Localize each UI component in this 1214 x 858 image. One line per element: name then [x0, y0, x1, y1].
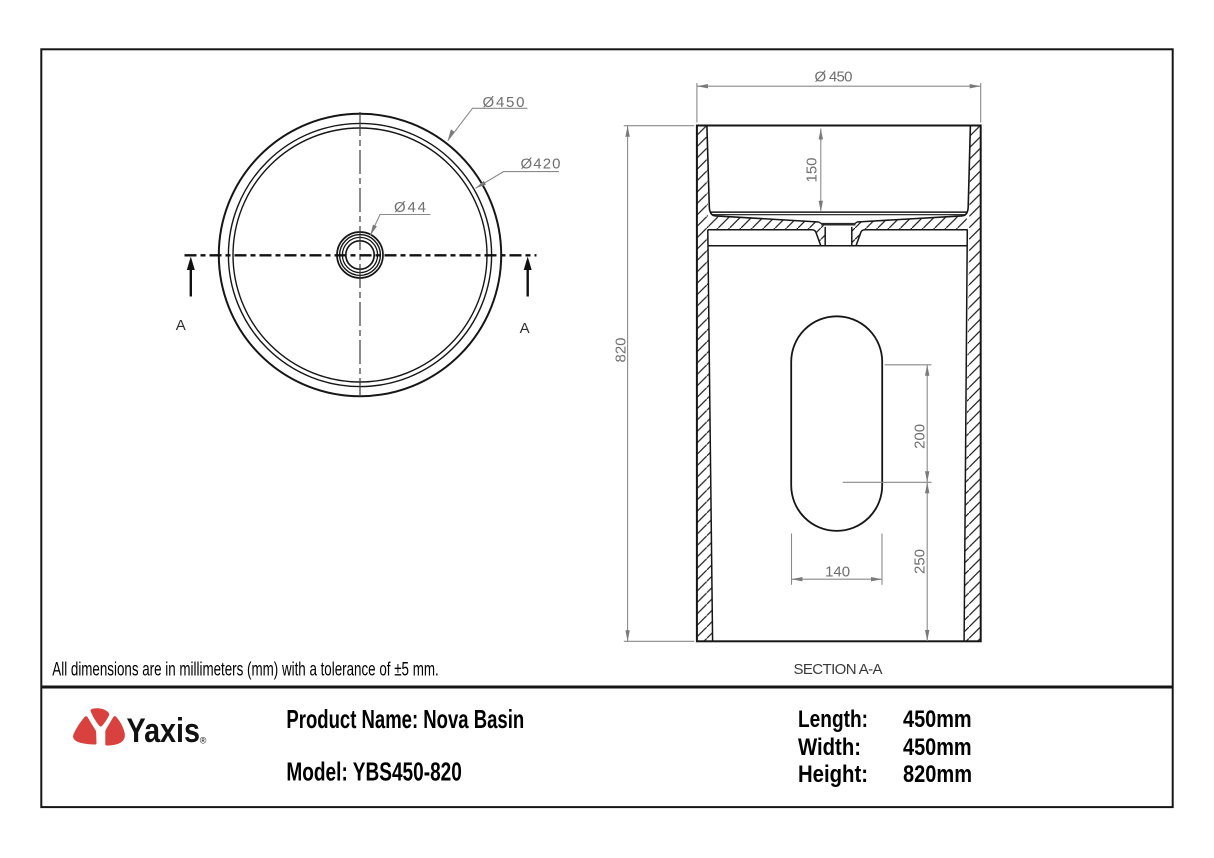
svg-text:SECTION A-A: SECTION A-A [794, 661, 883, 678]
svg-text:Ø 450: Ø 450 [815, 69, 853, 86]
svg-text:150: 150 [804, 157, 821, 182]
svg-text:Yaxis: Yaxis [127, 712, 201, 750]
svg-text:Model: YBS450-820: Model: YBS450-820 [286, 757, 462, 787]
svg-text:Product Name: Nova Basin: Product Name: Nova Basin [286, 704, 524, 734]
svg-text:Ø450: Ø450 [483, 94, 525, 111]
svg-text:450mm: 450mm [903, 706, 972, 733]
svg-text:820mm: 820mm [903, 761, 972, 788]
svg-text:140: 140 [825, 564, 850, 581]
svg-text:820: 820 [613, 337, 630, 362]
svg-text:Height:: Height: [798, 761, 868, 788]
svg-text:A: A [520, 320, 530, 337]
svg-text:250: 250 [912, 549, 929, 574]
svg-text:All dimensions are in millimet: All dimensions are in millimeters (mm) w… [52, 658, 438, 680]
svg-text:Width:: Width: [798, 734, 861, 761]
svg-text:Length:: Length: [798, 706, 868, 733]
svg-text:A: A [176, 317, 186, 334]
svg-text:®: ® [200, 736, 207, 746]
svg-text:450mm: 450mm [903, 734, 972, 761]
svg-text:Ø44: Ø44 [394, 199, 426, 216]
svg-text:200: 200 [912, 424, 929, 449]
svg-text:Ø420: Ø420 [521, 156, 561, 173]
